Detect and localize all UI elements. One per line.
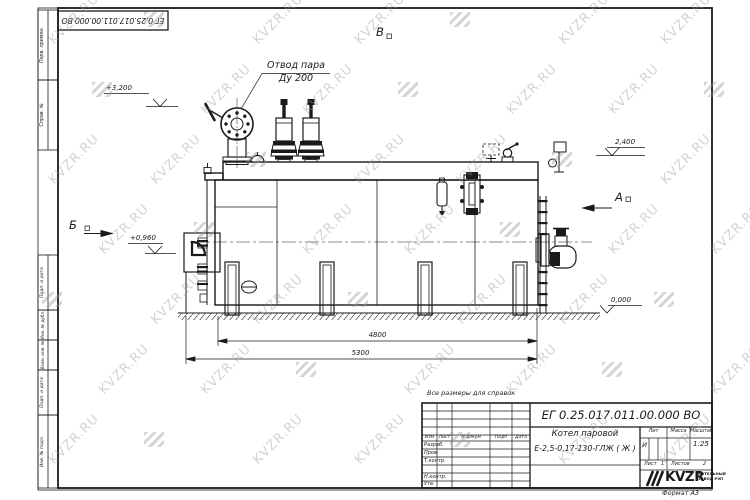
support-legs	[225, 262, 527, 315]
col-data: Дата	[512, 436, 530, 441]
title-doc-number: ЕГ 0.25.017.011.00.000 ВО	[530, 403, 712, 427]
stamp-perv-primen: Перв. примен.	[40, 10, 45, 80]
sheet-ref-mark	[626, 197, 631, 202]
list-label: Лист	[644, 462, 657, 468]
stamp-podp-data-1: Подп. и дата	[40, 255, 45, 310]
elevation-marks	[104, 94, 645, 314]
elevation-label-2400: 2,400	[615, 139, 635, 147]
sensor-fitting	[483, 144, 499, 162]
lit-label: Лит	[640, 429, 667, 435]
elevation-label-0000: 0,000	[611, 297, 631, 305]
stamp-vzam-inv: Взам. инв. №	[40, 340, 45, 370]
stamp-podp-data-2: Подп. и дата	[40, 370, 45, 415]
view-label-v: В	[376, 26, 384, 39]
ladder	[539, 196, 548, 313]
lever-valve	[502, 142, 519, 162]
col-list: Лист	[437, 436, 452, 441]
safety-valve-2	[298, 99, 324, 162]
stamp-inv-podl: Инв. № подл.	[40, 415, 45, 488]
safety-valve-1	[271, 99, 297, 162]
row-prov: Пров.	[424, 451, 439, 457]
view-label-a: А	[615, 191, 623, 204]
feed-pump	[536, 229, 576, 269]
masshtab-value: 1:25	[690, 441, 712, 449]
row-nkontr: Н.контр.	[424, 475, 446, 481]
stamp-sprav-n: Справ. №	[40, 80, 45, 150]
elevation-mark-3200	[104, 94, 178, 107]
view-arrows	[84, 34, 631, 237]
water-level-gauge	[437, 178, 447, 215]
sheet-ref-mark	[387, 34, 392, 39]
row-tkontr: Т.контр.	[424, 459, 446, 465]
listov-label: Листов	[671, 462, 690, 468]
kvzr-logo-icon	[647, 471, 663, 486]
elevation-mark-2400	[596, 148, 645, 156]
elevation-label-3200: +3,200	[106, 85, 132, 93]
gauge-glass-column	[460, 172, 484, 215]
callout-steam-line2: Ду 200	[261, 74, 331, 84]
view-label-b: Б	[69, 219, 77, 232]
product-name-line1: Котел паровой	[535, 430, 635, 439]
drum-bracket	[204, 163, 211, 174]
product-name-line2: Е-2,5-0,17-130-ГЛЖ ( Ж )	[531, 445, 639, 454]
massa-label: Масса	[667, 429, 690, 435]
listov-value: 2	[703, 462, 706, 468]
elevation-label-0960: +0,960	[130, 235, 156, 243]
lit-value: И	[640, 442, 649, 449]
col-izm: Изм	[422, 436, 437, 441]
reference-note: Все размеры для справок	[427, 390, 515, 397]
stamp-inv-dubl: Инв. № дубл.	[40, 310, 45, 340]
callout-steam-line1: Отвод пара	[261, 61, 331, 71]
logo-caption-line2: ЗАВОД РЭП	[698, 477, 723, 481]
dim-label-5300: 5300	[338, 350, 383, 358]
list-value: 1	[661, 462, 664, 468]
col-podp: Подп	[490, 436, 512, 441]
sheet-ref-mark	[85, 226, 90, 231]
gauge-rod	[549, 142, 567, 172]
format-label: Формат А3	[662, 490, 699, 497]
steam-dome	[251, 152, 264, 162]
reversed-doc-number: ЕГ 0.25.017.011.00.000 ВО	[58, 11, 168, 30]
col-ndokum: N докум	[452, 436, 490, 441]
dim-label-4800: 4800	[355, 332, 400, 340]
row-utv: Утв.	[424, 482, 435, 488]
row-razrab: Разраб.	[424, 443, 444, 449]
steam-outlet-valve	[205, 98, 253, 168]
masshtab-label: Масштаб	[690, 429, 712, 434]
view-b-arrow	[84, 231, 112, 237]
elevation-mark-0000	[600, 306, 642, 314]
drawing-sheet: ЕГ 0.25.017.011.00.000 ВО Отвод пара Ду …	[0, 0, 750, 500]
elevation-mark-0960	[128, 244, 176, 254]
manhole	[242, 281, 257, 293]
view-a-arrow	[583, 205, 612, 211]
